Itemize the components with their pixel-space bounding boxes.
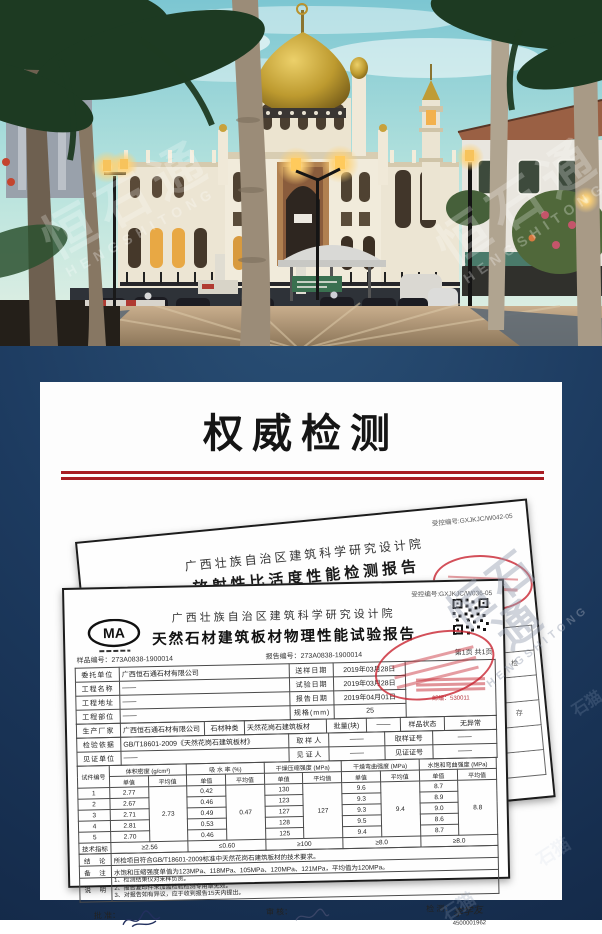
- certificates-panel: 权威检测 受控编号:GXJKJC/W042-05 广西壮族自治区建筑科学研究设计…: [40, 382, 562, 900]
- sub-header: 平均值: [303, 772, 342, 784]
- sub-header: 平均值: [225, 773, 264, 785]
- review-signature: [292, 905, 332, 928]
- tester-signature-group: 检 测： 李学友 4500001962: [426, 902, 486, 927]
- conclusion-label: 结 论: [79, 854, 111, 867]
- mosque-photo: 恒石通 HENGSHITONG 恒石通 HENGSHITONG: [0, 0, 602, 346]
- result-avg: 8.8: [458, 779, 498, 835]
- info-label: 委托单位: [75, 667, 119, 682]
- promo-page: 恒石通 HENGSHITONG 恒石通 HENGSHITONG 权威检测 受控编…: [0, 0, 602, 920]
- sub-header: 平均值: [148, 775, 187, 787]
- tester-number: 4500001962: [453, 920, 486, 927]
- info-value: ——: [433, 729, 497, 744]
- red-divider-line-bottom: [61, 477, 544, 480]
- info-label: 取 样 人: [289, 733, 329, 748]
- result-avg: 2.73: [148, 786, 188, 842]
- misc-watermark: 石猫: [566, 683, 602, 721]
- front-doc-control-no: 受控编号:GXJKJC/W036-05: [411, 587, 492, 599]
- result-cell: 2.77: [110, 787, 149, 799]
- result-cell: 9.4: [343, 826, 382, 838]
- result-cell: 9.6: [342, 782, 381, 794]
- result-cell: 8.9: [419, 791, 458, 803]
- result-cell: 4: [78, 821, 110, 833]
- info-value: ——: [366, 717, 400, 732]
- mosque-scene-art: 恒石通 HENGSHITONG 恒石通 HENGSHITONG: [0, 0, 602, 346]
- result-cell: 8.7: [420, 824, 459, 836]
- result-cell: 2.67: [110, 798, 149, 810]
- info-label: 检验依据: [77, 737, 121, 752]
- physical-test-report-document: 受控编号:GXJKJC/W036-05: [62, 579, 510, 888]
- result-cell: 9.3: [342, 793, 381, 805]
- info-label: 石材种类: [204, 721, 244, 736]
- sub-header: 单值: [264, 772, 303, 784]
- info-label: 报告日期: [290, 691, 334, 706]
- result-cell: 8.6: [420, 813, 459, 825]
- info-label: 工程地址: [76, 695, 120, 710]
- result-cell: 0.49: [188, 807, 227, 819]
- tech-label: 技术指标: [79, 843, 111, 855]
- result-cell: 0.42: [187, 785, 226, 797]
- result-cell: 9.5: [342, 815, 381, 827]
- info-value: ——: [329, 732, 385, 747]
- review-label: 审 核：: [266, 906, 292, 918]
- result-cell: 2.71: [110, 809, 149, 821]
- sub-header: 单值: [187, 774, 226, 786]
- result-cell: 128: [265, 816, 304, 828]
- info-label: 试验日期: [289, 677, 333, 692]
- back-doc-control-no: 受控编号:GXJKJC/W042-05: [431, 510, 513, 528]
- result-cell: 0.46: [187, 796, 226, 808]
- remark-label: 备 注: [79, 866, 111, 879]
- info-label: 送样日期: [289, 663, 333, 678]
- result-cell: 9.0: [420, 802, 459, 814]
- info-label: 见 证 人: [289, 747, 329, 762]
- notes-label: 说 明: [80, 878, 112, 902]
- signature-row: 批 准： 审 核： 检 测： 李学友 4500001962: [80, 901, 500, 934]
- info-label: 工程名称: [75, 681, 119, 696]
- result-cell: 0.53: [188, 818, 227, 830]
- result-cell: 1: [78, 788, 110, 800]
- info-label: 取样证号: [385, 731, 433, 746]
- result-cell: 9.3: [342, 804, 381, 816]
- result-cell: 130: [264, 783, 303, 795]
- result-avg: 9.4: [380, 781, 420, 837]
- result-cell: 2.81: [110, 820, 149, 832]
- sub-header: 单值: [109, 776, 148, 788]
- cma-logo-icon: MA: [87, 618, 142, 660]
- result-cell: 123: [265, 794, 304, 806]
- red-divider-line-top: [61, 471, 544, 474]
- sub-header: 单值: [342, 771, 381, 783]
- result-avg: 127: [303, 783, 343, 839]
- result-avg: 0.47: [226, 784, 266, 840]
- info-label: 批量(块): [326, 718, 366, 733]
- review-signature-group: 审 核：: [266, 905, 333, 928]
- result-cell: 8.7: [419, 780, 458, 792]
- sub-header: 平均值: [380, 770, 419, 782]
- test-label: 检 测：: [426, 902, 452, 914]
- conclusion-table: 结 论 所检项目符合GB/T18601-2009标准中天然花岗石建筑板材的技术要…: [79, 845, 500, 902]
- result-cell: 0.46: [188, 829, 227, 841]
- result-cell: 5: [79, 832, 111, 844]
- approve-signature-group: 批 准：: [94, 908, 173, 932]
- report-no: 报告编号：273A0838-1900014: [266, 650, 363, 662]
- approve-label: 批 准：: [94, 909, 120, 921]
- result-cell: 3: [78, 810, 110, 822]
- result-cell: 2: [78, 799, 110, 811]
- sub-header: 单值: [419, 769, 458, 781]
- result-cell: 125: [265, 827, 304, 839]
- svg-text:MA: MA: [103, 625, 125, 641]
- sub-header: 平均值: [458, 768, 497, 780]
- results-header: 试件编号: [77, 766, 109, 789]
- result-cell: 127: [265, 805, 304, 817]
- results-table: 试件编号 体积密度 (g/cm³) 吸 水 率 (%) 干燥压缩强度 (MPa)…: [77, 757, 499, 855]
- result-cell: 2.70: [111, 831, 150, 843]
- section-title: 权威检测: [40, 412, 562, 456]
- tester-name: 李学友: [452, 900, 484, 919]
- side-cell: [502, 750, 546, 779]
